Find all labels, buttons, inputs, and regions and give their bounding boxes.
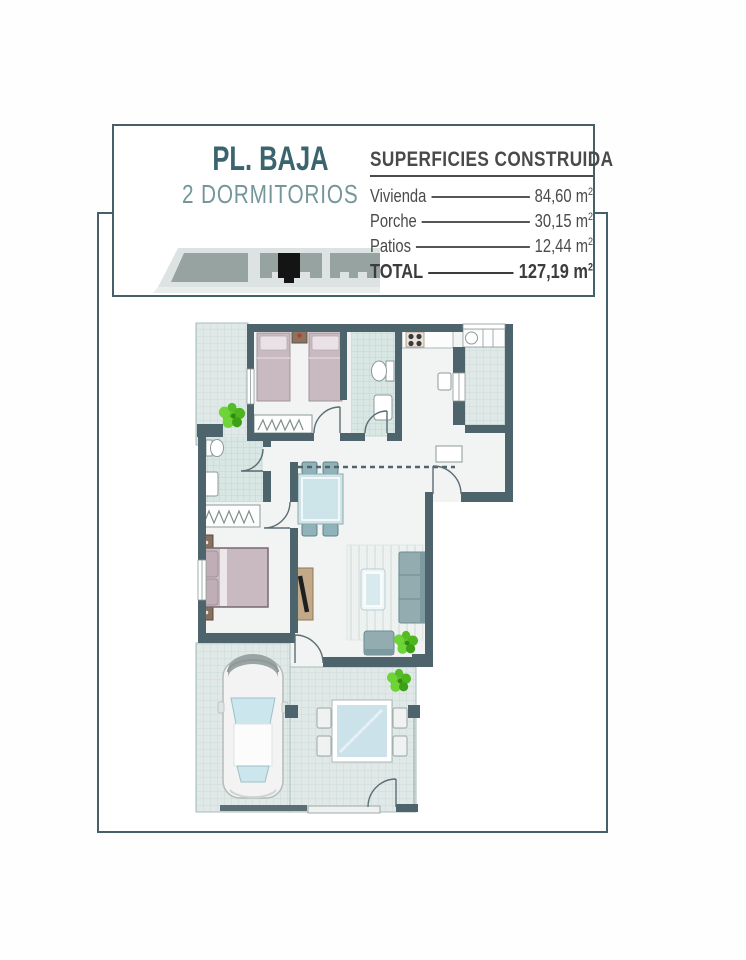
gate-threshold [396, 804, 418, 812]
porch-pillar [408, 705, 420, 718]
chair [317, 736, 331, 756]
surfaces-title: SUPERFICIES CONSTRUIDA [370, 148, 593, 177]
surface-row-total: TOTAL 127,19 m2 [370, 259, 593, 286]
threshold-dark [220, 805, 307, 811]
toilet-bowl [372, 361, 387, 381]
porch-pillar [285, 705, 298, 718]
chair [317, 708, 331, 728]
rear-window [237, 766, 269, 782]
kitchen-sink [438, 373, 451, 390]
toilet-bowl [211, 440, 224, 457]
master-bed [200, 535, 268, 620]
patio-right [465, 347, 505, 425]
surface-row-porche: Porche 30,15 m2 [370, 209, 593, 234]
roof [234, 724, 272, 766]
toilet-tank [386, 361, 394, 381]
entry-cupboard [436, 446, 462, 462]
page-title: PL. BAJA [212, 142, 328, 178]
windshield [231, 698, 275, 724]
hall-closet-hangers [200, 505, 260, 527]
chair [323, 524, 338, 536]
chair [302, 524, 317, 536]
dining-table [298, 474, 343, 524]
leader-line [422, 221, 530, 223]
leader-line [428, 272, 514, 274]
header-card: PL. BAJA 2 DORMITORIOS SUPERFICIES CONST… [112, 124, 595, 297]
bathroom-1-floor [351, 330, 395, 437]
leader-line [416, 246, 530, 248]
washbasin [374, 395, 392, 420]
chair [393, 708, 407, 728]
mirror [218, 702, 224, 713]
utility-counter [463, 329, 505, 347]
threshold-step [308, 806, 380, 813]
brochure-page: PL. BAJA 2 DORMITORIOS SUPERFICIES CONST… [0, 0, 746, 960]
page-subtitle: 2 DORMITORIOS [182, 179, 358, 210]
leader-line [431, 196, 529, 198]
surfaces-table: SUPERFICIES CONSTRUIDA Vivienda 84,60 m2… [370, 148, 593, 286]
surface-row-vivienda: Vivienda 84,60 m2 [370, 184, 593, 209]
wardrobe-hangers [254, 415, 312, 433]
car-top-view [218, 654, 288, 798]
site-plan-thumbnail-icon [144, 246, 384, 298]
washing-machine [466, 332, 478, 344]
surface-row-patios: Patios 12,44 m2 [370, 234, 593, 259]
floor-plan-drawing [190, 316, 520, 816]
stove [406, 332, 424, 347]
chair [393, 736, 407, 756]
